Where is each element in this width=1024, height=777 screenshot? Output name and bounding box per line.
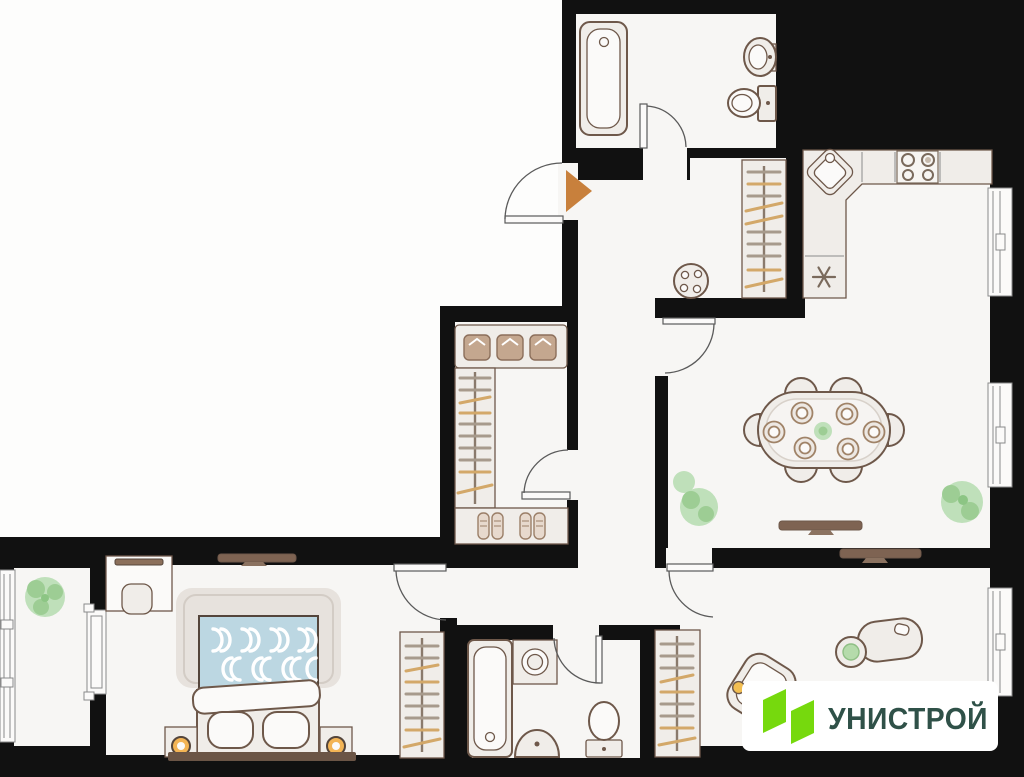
window-bedroom2 (988, 588, 1012, 696)
table-plant-icon (814, 422, 832, 440)
closet-shelf (455, 325, 567, 368)
doorway (553, 625, 599, 641)
corridor-floor (457, 568, 714, 625)
toilet2 (586, 702, 622, 757)
shoe-shelf (455, 508, 568, 544)
folded-clothes-icon (464, 335, 556, 360)
headboard (168, 752, 356, 761)
bed (165, 588, 356, 761)
wall-sink (744, 38, 776, 76)
bathtub2 (468, 640, 512, 757)
hall-wardrobe (742, 160, 786, 298)
bedroom-wardrobe (400, 632, 444, 758)
toilet (728, 86, 776, 121)
bedroom2-wardrobe (655, 630, 700, 757)
balcony-plant-icon (25, 577, 65, 617)
floor-plan-stage: УНИСТРОЙ (0, 0, 1024, 777)
corner-plant2-icon (941, 481, 983, 523)
pillow (263, 712, 309, 748)
window-dining (988, 383, 1012, 487)
doorway (440, 568, 458, 618)
brand-logo: УНИСТРОЙ (742, 681, 998, 751)
window-kitchen (988, 188, 1012, 296)
balcony-door (84, 604, 106, 700)
washing-machine (513, 640, 557, 684)
stove (897, 151, 938, 183)
doorway (643, 148, 687, 182)
pillow (208, 712, 253, 748)
closet-rail (455, 368, 495, 508)
pouf (674, 264, 708, 298)
balcony (25, 577, 65, 617)
bathtub (580, 22, 627, 135)
bedroom-desk (106, 556, 172, 614)
doorway (655, 318, 669, 376)
floor-plan: УНИСТРОЙ (0, 0, 1024, 777)
office-chair (836, 637, 866, 667)
logo-text: УНИСТРОЙ (828, 700, 988, 736)
window-balcony (0, 570, 15, 742)
desk-chair (122, 584, 152, 614)
